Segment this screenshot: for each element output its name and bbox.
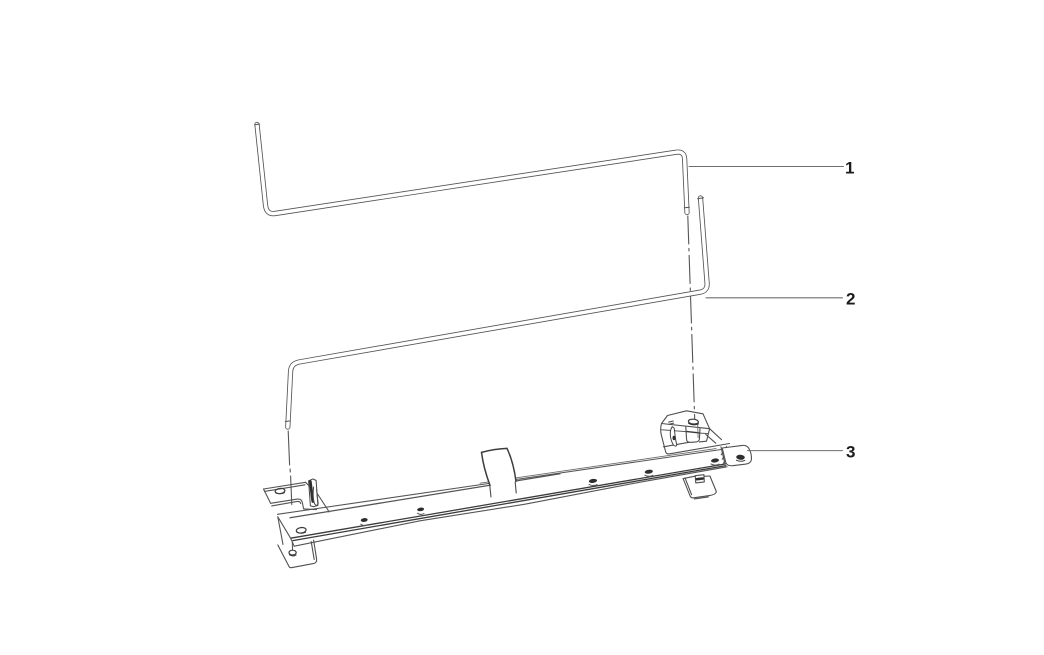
svg-text:2: 2 — [846, 290, 855, 309]
svg-text:1: 1 — [845, 159, 854, 178]
svg-text:3: 3 — [846, 443, 855, 462]
